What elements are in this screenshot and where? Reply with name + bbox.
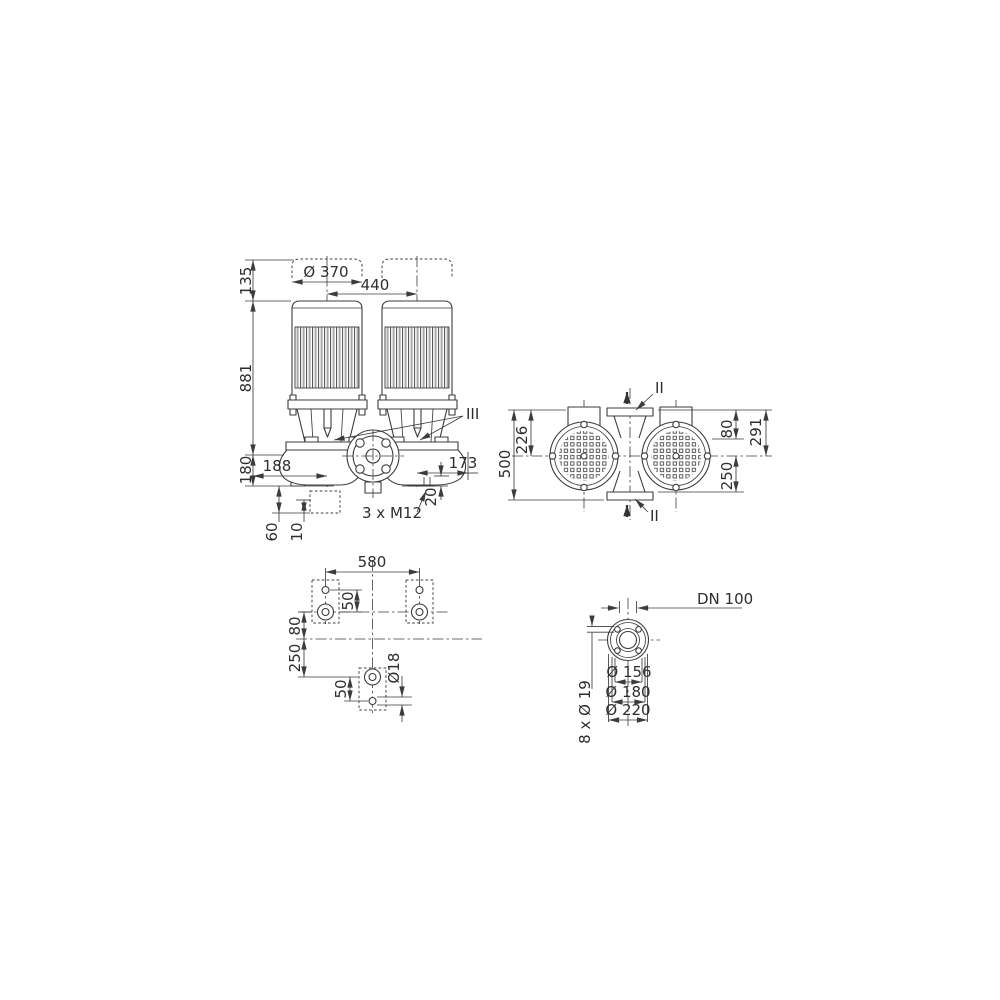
dim-bolt-circle: Ø 180 <box>605 683 650 701</box>
motor-left-cooling-fins <box>295 327 359 388</box>
dim-50-lower: 50 <box>332 679 350 698</box>
dim-50-upper: 50 <box>339 591 357 610</box>
flange-bolt-hole <box>636 627 642 633</box>
label-foundation-bolts: 3 x M12 <box>362 504 422 522</box>
discharge-flange <box>607 408 653 416</box>
dim-motor-diameter: Ø 370 <box>303 263 348 281</box>
flange-bolt-hole <box>615 648 621 654</box>
dim-440: 440 <box>361 276 390 294</box>
pilot-hole-upper-left <box>322 587 329 594</box>
fan-cover-right <box>641 421 710 490</box>
dim-135: 135 <box>237 267 255 296</box>
dim-250: 250 <box>718 462 736 491</box>
dim-10: 10 <box>288 522 306 541</box>
motor-right-flange <box>378 400 457 409</box>
motor-right-cooling-fins <box>385 327 449 388</box>
dim-80: 80 <box>718 419 736 438</box>
drawing-canvas: 135 881 180 Ø 370 440 188 173 20 3 x M12 <box>0 0 1000 1000</box>
pilot-hole-lower <box>369 698 376 705</box>
dim-180: 180 <box>237 456 255 485</box>
dim-20: 20 <box>422 487 440 506</box>
flange-bore <box>620 632 637 649</box>
dim-226: 226 <box>513 426 531 455</box>
motor-left-shaft <box>324 409 331 428</box>
label-bolt-holes: 8 x Ø 19 <box>576 680 594 744</box>
motor-left-flange <box>288 400 367 409</box>
label-nominal-bore: DN 100 <box>697 590 753 608</box>
background <box>0 0 1000 1000</box>
flange-bolt-hole <box>615 627 621 633</box>
dim-291: 291 <box>747 418 765 447</box>
suction-flange <box>607 492 653 500</box>
dim-hole-diameter: Ø18 <box>385 653 403 684</box>
dim-raised-face: Ø 156 <box>606 663 651 681</box>
marker-port-top-II: II <box>655 379 664 397</box>
dim-881: 881 <box>237 364 255 393</box>
pilot-hole-upper-right <box>416 587 423 594</box>
dim-80-plan: 80 <box>286 616 304 635</box>
dim-173: 173 <box>449 454 478 472</box>
dim-580: 580 <box>358 553 387 571</box>
dim-outer-diameter: Ø 220 <box>605 701 650 719</box>
dim-250-plan: 250 <box>286 644 304 673</box>
flange-bolt-hole <box>636 648 642 654</box>
pump-dimensional-drawing: 135 881 180 Ø 370 440 188 173 20 3 x M12 <box>0 0 1000 1000</box>
marker-drain-III: III <box>466 405 479 423</box>
fan-cover-left <box>549 421 618 490</box>
marker-port-bottom-II: II <box>650 507 659 525</box>
dim-500: 500 <box>496 450 514 479</box>
dim-188: 188 <box>263 457 292 475</box>
dim-60: 60 <box>263 522 281 541</box>
